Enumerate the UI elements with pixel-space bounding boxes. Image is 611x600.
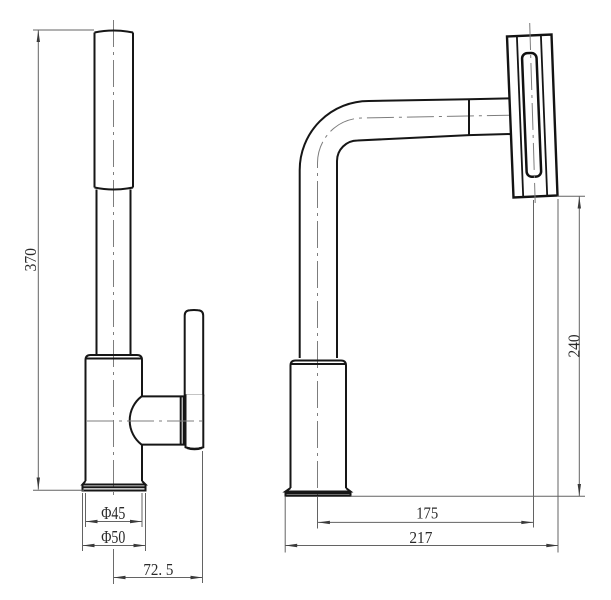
svg-text:Φ45: Φ45 [101, 503, 125, 523]
svg-text:217: 217 [409, 528, 432, 547]
svg-text:370: 370 [21, 248, 40, 272]
svg-text:175: 175 [416, 504, 438, 523]
svg-text:72. 5: 72. 5 [143, 560, 173, 579]
svg-text:240: 240 [565, 335, 584, 358]
svg-text:Φ50: Φ50 [101, 527, 125, 547]
